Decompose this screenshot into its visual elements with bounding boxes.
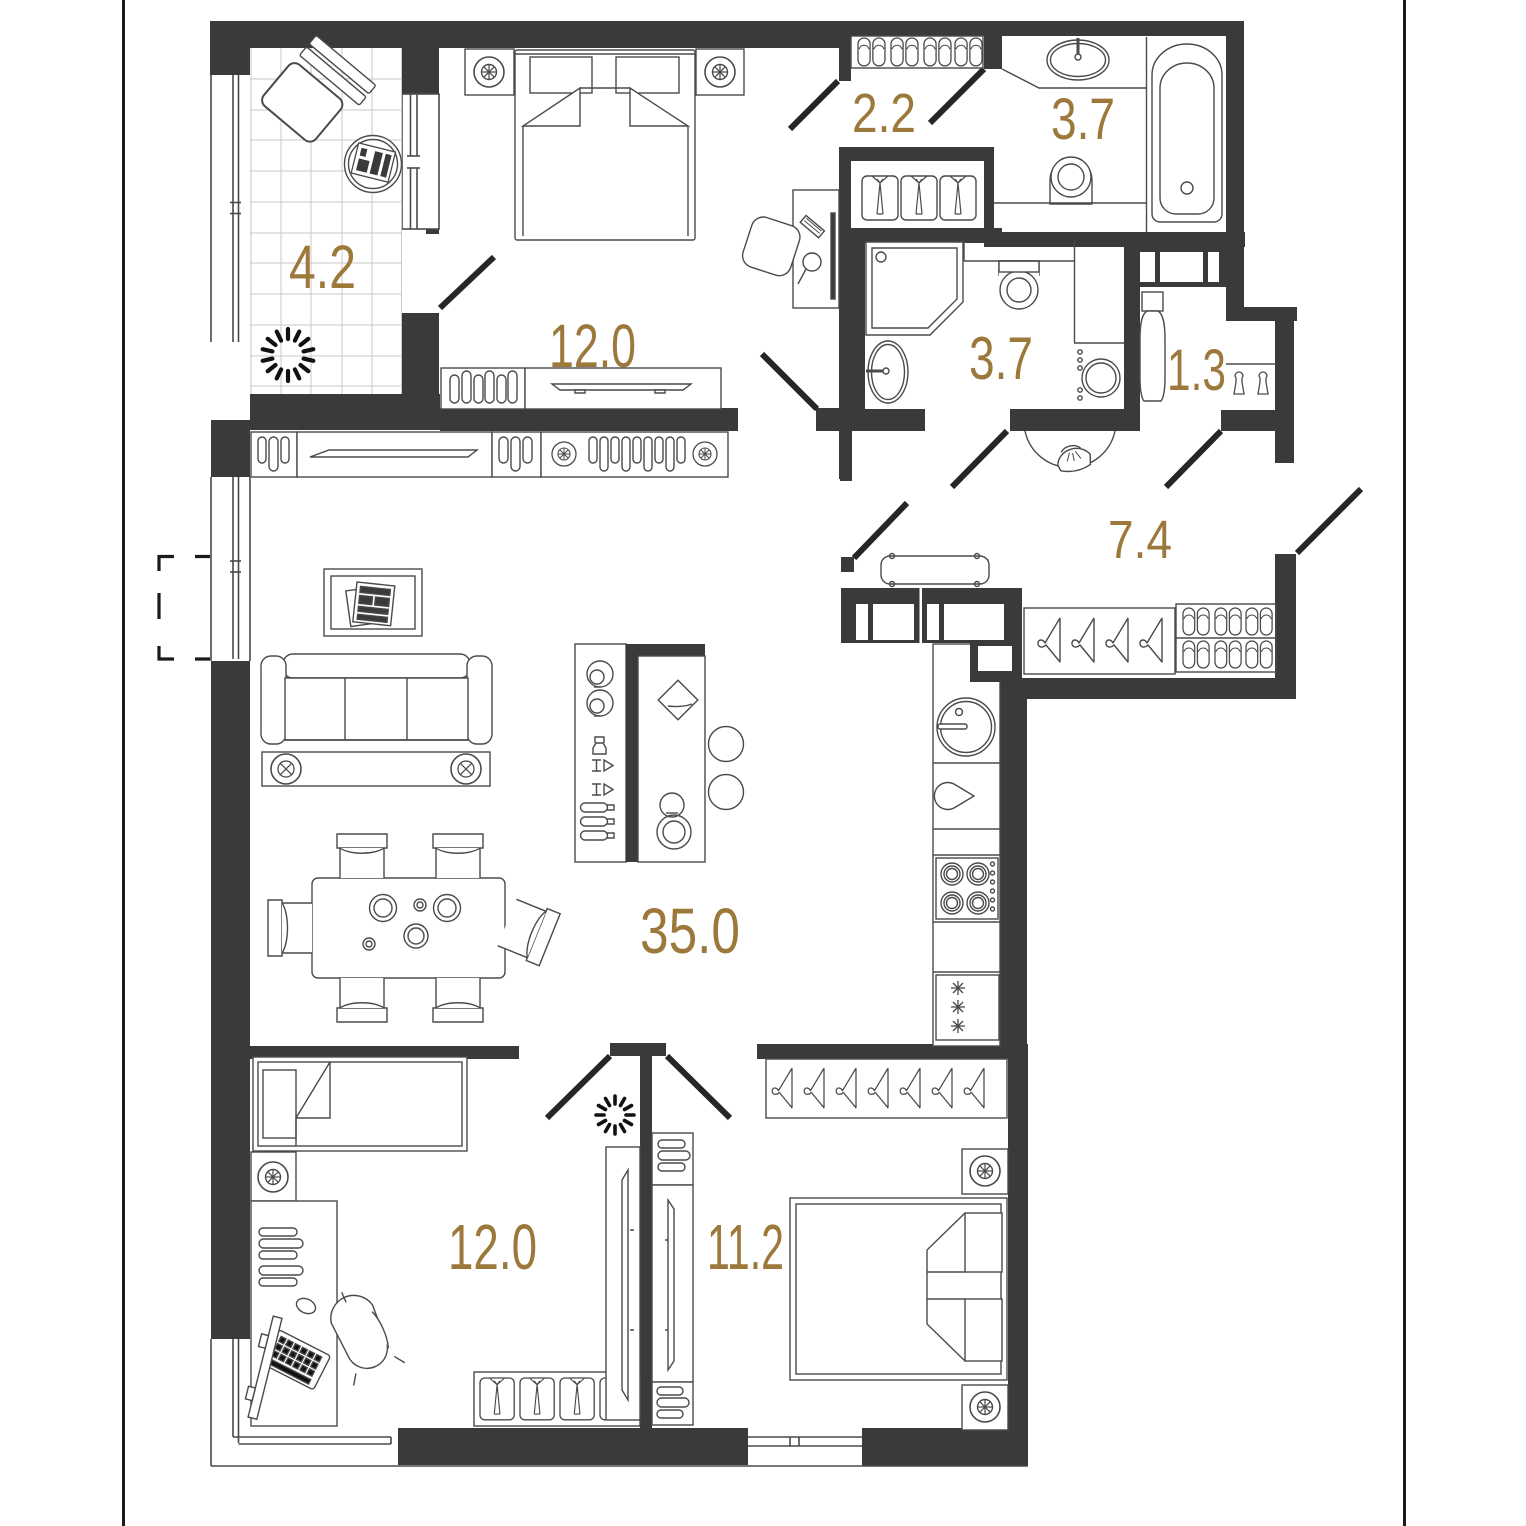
svg-text:2.2: 2.2 <box>852 82 916 144</box>
svg-text:12.0: 12.0 <box>549 312 636 380</box>
svg-text:4.2: 4.2 <box>289 233 356 301</box>
svg-text:3.7: 3.7 <box>969 325 1033 392</box>
svg-text:7.4: 7.4 <box>1108 510 1172 570</box>
svg-text:12.0: 12.0 <box>448 1211 537 1283</box>
svg-text:1.3: 1.3 <box>1167 338 1226 403</box>
svg-text:35.0: 35.0 <box>640 895 740 967</box>
svg-text:11.2: 11.2 <box>707 1211 784 1283</box>
svg-text:3.7: 3.7 <box>1051 87 1115 152</box>
